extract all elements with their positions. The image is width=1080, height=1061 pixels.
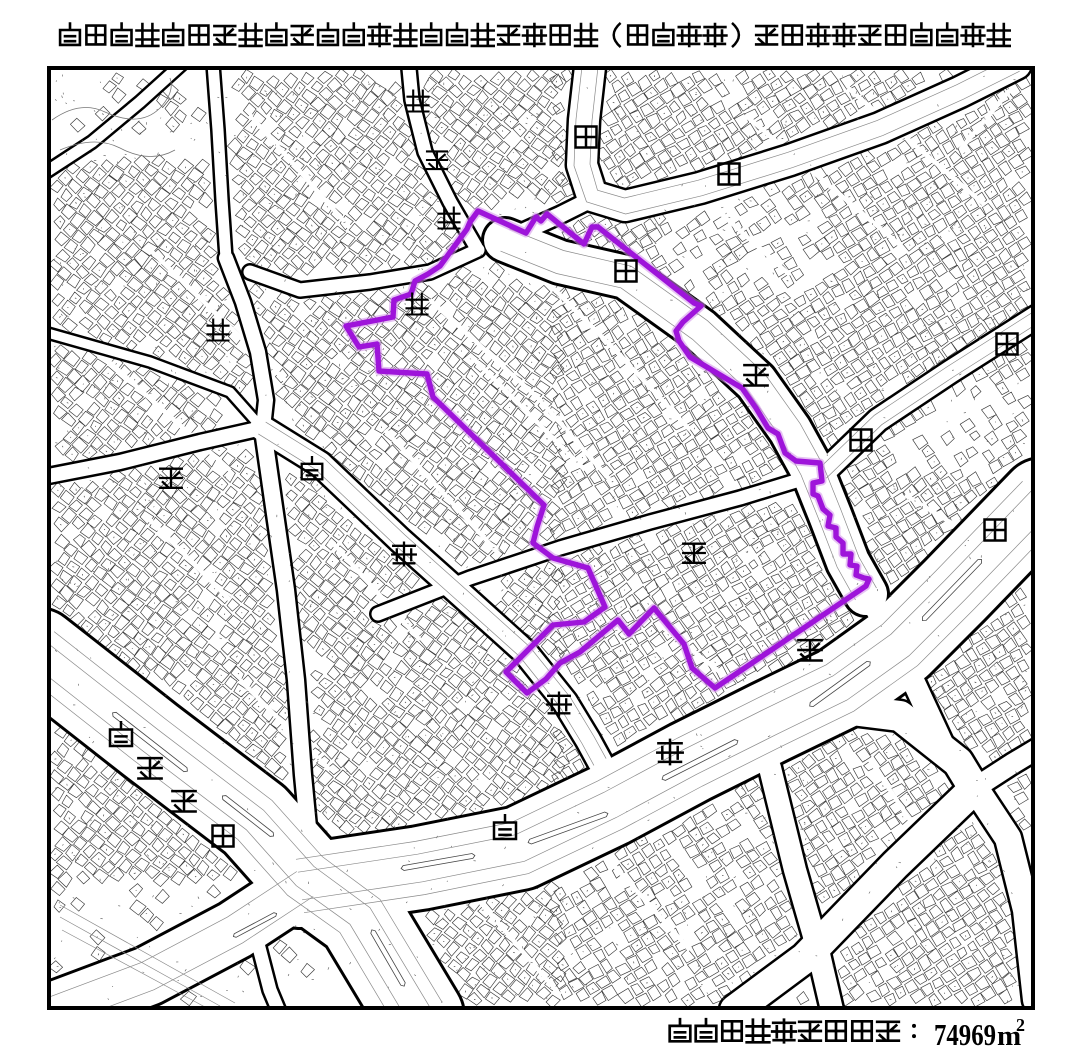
svg-text:74969: 74969 <box>934 1017 996 1052</box>
svg-text:2: 2 <box>1016 1015 1025 1035</box>
